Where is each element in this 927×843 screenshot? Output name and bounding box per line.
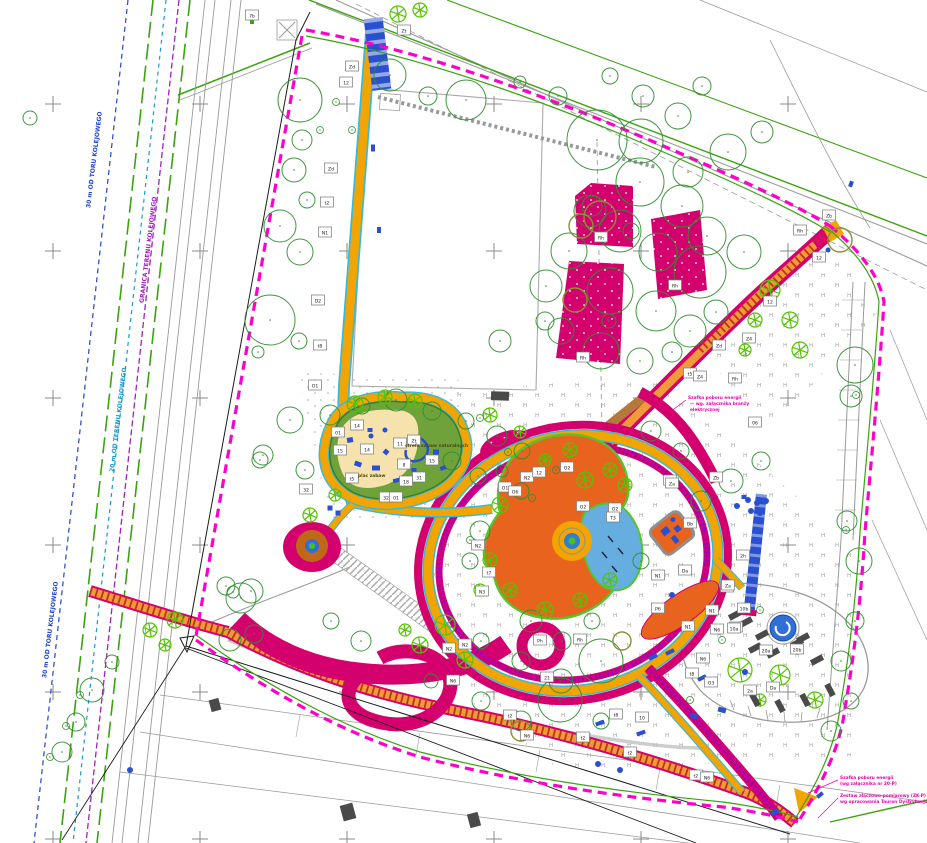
bench-or-equipment xyxy=(347,437,354,443)
tag-code: Rh xyxy=(580,355,586,361)
tree-center-dot xyxy=(427,95,429,97)
tag-code: 12 xyxy=(343,80,349,86)
tree-center-dot xyxy=(530,620,532,622)
bench-or-equipment xyxy=(433,450,439,455)
tag-code: Rh xyxy=(672,283,678,289)
label-tag: 2a xyxy=(744,685,757,695)
point-element xyxy=(383,428,388,433)
label-tag: 10b xyxy=(738,603,751,613)
tree-center-dot xyxy=(560,680,562,682)
tag-code: N1 xyxy=(685,624,691,630)
label-tag: N2 xyxy=(443,643,456,653)
label-tag: N6 xyxy=(697,653,710,663)
tag-code: 12 xyxy=(536,470,542,476)
tree-center-dot xyxy=(389,74,391,76)
label-tag: N6 xyxy=(701,772,714,782)
tag-code: t2 xyxy=(628,750,633,756)
tag-code: N6 xyxy=(450,678,456,684)
tree-center-dot xyxy=(591,205,593,207)
label-tag: 14 xyxy=(351,420,364,430)
tree-center-dot xyxy=(269,319,271,321)
tag-code: N3 xyxy=(479,589,485,595)
label-tag: t5 xyxy=(346,473,359,483)
tree-center-dot xyxy=(61,751,63,753)
tree-center-dot xyxy=(681,205,683,207)
tag-code: 10a xyxy=(730,626,739,632)
tree-center-dot xyxy=(640,140,642,142)
tag-code: 7b xyxy=(249,13,255,19)
tag-code: N1 xyxy=(709,608,715,614)
label-tag: 32 xyxy=(300,484,313,494)
label-tag: N1 xyxy=(319,227,332,237)
label-tag: 20b xyxy=(791,644,804,654)
tree-center-dot xyxy=(657,251,659,253)
tree-center-dot xyxy=(496,435,498,437)
tree-center-dot xyxy=(499,340,501,342)
small-tree-dot xyxy=(351,129,352,130)
label-tag: O1 xyxy=(309,380,322,390)
point-element xyxy=(826,248,831,253)
annotation-line: wg opracowania Tauron Dystrybucja xyxy=(840,799,927,805)
small-tree-dot xyxy=(721,639,722,640)
tag-code: Rh xyxy=(577,637,583,643)
tree-center-dot xyxy=(680,450,682,452)
tree-center-dot xyxy=(689,330,691,332)
point-element xyxy=(754,500,760,506)
tag-code: Z4 xyxy=(697,374,703,380)
label-tag: 21 xyxy=(541,672,554,682)
label-tag: 12 xyxy=(813,252,826,262)
bench-or-equipment xyxy=(412,468,417,472)
point-element xyxy=(369,434,374,439)
point-element xyxy=(748,508,754,514)
bench-or-equipment xyxy=(336,511,341,516)
tag-code: O2 xyxy=(580,504,587,510)
label-tag: 01 xyxy=(390,492,403,502)
tag-code: t2 xyxy=(325,200,330,206)
label-tag: T3 xyxy=(607,512,620,522)
point-element xyxy=(745,497,751,503)
tag-code: t2 xyxy=(581,735,586,741)
tree-center-dot xyxy=(743,251,745,253)
label-tag: Rh xyxy=(595,232,608,242)
tag-code: t5 xyxy=(350,476,355,482)
tree-center-dot xyxy=(840,660,842,662)
tag-code: N6 xyxy=(714,627,720,633)
tree-center-dot xyxy=(608,320,610,322)
annotation-line: Zestaw złączowo-pomiarowy (ZK-P) xyxy=(840,793,926,799)
label-tag: 12 xyxy=(340,77,353,87)
tree-center-dot xyxy=(111,661,113,663)
tag-code: Da xyxy=(682,568,689,574)
tree-center-dot xyxy=(596,139,598,141)
tag-code: t8 xyxy=(690,671,695,677)
tag-code: T3 xyxy=(609,515,616,521)
label-tag: Zt xyxy=(398,25,411,35)
tree-center-dot xyxy=(232,591,234,593)
playground-label: plac zabaw xyxy=(358,473,385,479)
tree-center-dot xyxy=(91,689,93,691)
small-tree-dot xyxy=(469,539,470,540)
bench-or-equipment xyxy=(368,428,373,432)
label-tag: Zb xyxy=(710,472,723,482)
annotation-line: elektrycznej xyxy=(690,407,720,413)
label-tag: Z4 xyxy=(694,371,707,381)
tree-center-dot xyxy=(568,250,570,252)
point-element xyxy=(669,592,675,598)
tree-center-dot xyxy=(451,460,453,462)
small-tree-dot xyxy=(555,469,556,470)
tag-code: O1 xyxy=(502,485,509,491)
tag-code: O6 xyxy=(512,489,519,495)
label-tag: 10 xyxy=(636,712,649,722)
tag-code: 2a xyxy=(747,688,753,694)
small-tree-dot xyxy=(531,497,532,498)
tree-center-dot xyxy=(727,151,729,153)
label-tag: Rh xyxy=(794,225,807,235)
label-tag: 14 xyxy=(361,444,374,454)
tree-center-dot xyxy=(465,420,467,422)
tree-center-dot xyxy=(699,271,701,273)
label-tag: 8 xyxy=(398,459,411,469)
tree-center-dot xyxy=(639,360,641,362)
label-tag: N3 xyxy=(476,586,489,596)
tree-center-dot xyxy=(609,75,611,77)
tag-code: 21 xyxy=(544,675,550,681)
tree-center-dot xyxy=(306,199,308,201)
label-tag: O2 xyxy=(577,501,590,511)
tree-center-dot xyxy=(760,460,762,462)
tree-center-dot xyxy=(29,117,31,119)
tree-center-dot xyxy=(655,310,657,312)
point-element xyxy=(734,503,740,509)
natural-zone-label: strefa zabaw naturalnych xyxy=(405,443,468,449)
label-tag: 06 xyxy=(749,417,762,427)
label-tag: t2 xyxy=(577,732,590,742)
tree-center-dot xyxy=(259,459,261,461)
small-tree-dot xyxy=(479,417,480,418)
annotation-line: (wg załącznika nr 20-P) xyxy=(840,781,897,787)
annotation-line: Szafka poboru energii xyxy=(688,395,742,401)
bench-or-equipment xyxy=(372,466,380,471)
label-tag: N2 xyxy=(472,540,485,550)
label-tag: 18 xyxy=(400,476,413,486)
tag-code: N2 xyxy=(446,646,452,652)
label-tag: t8 xyxy=(314,340,327,350)
tag-code: 01 xyxy=(335,430,341,436)
small-tree-dot xyxy=(65,725,66,726)
label-tag: t8 xyxy=(610,709,623,719)
small-tree-dot xyxy=(855,394,856,395)
tree-center-dot xyxy=(329,414,331,416)
label-tag: Zd xyxy=(346,61,359,71)
tag-code: 32 xyxy=(303,487,309,493)
label-tag: 7b xyxy=(246,10,259,20)
tree-center-dot xyxy=(850,395,852,397)
tree-center-dot xyxy=(229,639,231,641)
small-tree-dot xyxy=(507,451,508,452)
tree-center-dot xyxy=(589,210,591,212)
tag-code: 14 xyxy=(364,447,370,453)
tag-code: t2 xyxy=(694,773,699,779)
label-tag: O2 xyxy=(609,503,622,513)
tree-center-dot xyxy=(257,351,259,353)
tag-code: Za xyxy=(669,481,675,487)
tag-code: O3 xyxy=(708,680,715,686)
point-element xyxy=(595,761,601,767)
tree-center-dot xyxy=(650,430,652,432)
tag-code: 20b xyxy=(793,647,802,653)
tree-center-dot xyxy=(298,340,300,342)
tag-code: 01 xyxy=(393,495,399,501)
tree-center-dot xyxy=(545,285,547,287)
tag-code: t2 xyxy=(508,713,513,719)
label-tag: 15 xyxy=(426,455,439,465)
tag-code: 10 xyxy=(639,715,645,721)
small-tree-dot xyxy=(689,699,690,700)
label-tag: N1 xyxy=(682,621,695,631)
tag-code: t8 xyxy=(614,712,619,718)
tag-code: Zb xyxy=(713,475,719,481)
tag-code: Ph xyxy=(537,638,543,644)
tag-code: 8 xyxy=(403,462,406,468)
tree-center-dot xyxy=(75,721,77,723)
label-tag: t2 xyxy=(321,197,334,207)
label-tag: O2 xyxy=(561,462,574,472)
tree-center-dot xyxy=(360,640,362,642)
tree-center-dot xyxy=(640,560,642,562)
tree-center-dot xyxy=(279,225,281,227)
tag-code: Zd xyxy=(716,343,722,349)
label-tag: t8 xyxy=(686,668,699,678)
tag-code: N2 xyxy=(462,642,468,648)
tree-center-dot xyxy=(293,169,295,171)
tag-code: 32 xyxy=(383,495,389,501)
tree-center-dot xyxy=(519,81,521,83)
bench-or-equipment xyxy=(328,506,333,511)
tree-center-dot xyxy=(850,700,852,702)
tree-center-dot xyxy=(830,730,832,732)
tag-code: N6 xyxy=(700,656,706,662)
tree-center-dot xyxy=(469,560,471,562)
tree-center-dot xyxy=(642,95,644,97)
tree-center-dot xyxy=(858,560,860,562)
tag-code: N1 xyxy=(655,573,661,579)
tree-center-dot xyxy=(560,330,562,332)
label-tag: N1 xyxy=(706,605,719,615)
tree-center-dot xyxy=(262,454,264,456)
point-element xyxy=(742,669,748,675)
tree-center-dot xyxy=(619,230,621,232)
tag-code: 31 xyxy=(416,475,422,481)
label-tag: N6 xyxy=(711,624,724,634)
tree-center-dot xyxy=(501,470,503,472)
label-tag: 20a xyxy=(760,645,773,655)
tag-code: t8 xyxy=(318,343,323,349)
tree-center-dot xyxy=(854,364,856,366)
tree-center-dot xyxy=(479,530,481,532)
point-element xyxy=(127,767,133,773)
point-element xyxy=(763,498,769,504)
label-tag: Da xyxy=(767,682,780,692)
label-tag: N1 xyxy=(652,570,665,580)
point-element xyxy=(757,510,763,516)
tree-center-dot xyxy=(430,680,432,682)
label-tag: 10a xyxy=(728,623,741,633)
label-tag: Rh xyxy=(574,634,587,644)
label-tag: Zd xyxy=(325,163,338,173)
tag-code: t5 xyxy=(688,371,693,377)
label-tag: Z4 xyxy=(743,333,756,343)
tag-code: D2 xyxy=(315,298,322,304)
tree-center-dot xyxy=(671,351,673,353)
annotation-line: Szafka poboru energii xyxy=(840,775,894,781)
tree-center-dot xyxy=(600,660,602,662)
tree-center-dot xyxy=(477,475,479,477)
small-tree-dot xyxy=(845,529,846,530)
label-tag: Rh xyxy=(577,352,590,362)
tree-center-dot xyxy=(544,320,546,322)
tree-center-dot xyxy=(521,450,523,452)
label-tag: Zd xyxy=(713,340,726,350)
tag-code: Rh xyxy=(797,228,803,234)
tag-code: N6 xyxy=(704,775,710,781)
annotation-line: — wg. załącznika branży xyxy=(690,401,749,407)
tree-center-dot xyxy=(299,99,301,101)
label-tag: Da xyxy=(679,565,692,575)
label-tag: t2 xyxy=(624,747,637,757)
tag-code: 12 xyxy=(767,299,773,305)
parking-fountain xyxy=(770,615,796,641)
tag-code: 2h xyxy=(740,553,746,559)
tree-center-dot xyxy=(225,585,227,587)
bench-or-equipment xyxy=(371,145,375,152)
bench-or-equipment xyxy=(377,227,381,233)
label-tag: 31 xyxy=(413,472,426,482)
small-tree-dot xyxy=(319,129,320,130)
label-tag: Za xyxy=(666,478,679,488)
tree-center-dot xyxy=(465,99,467,101)
small-tree-dot xyxy=(49,756,50,757)
tree-center-dot xyxy=(289,419,291,421)
tree-center-dot xyxy=(480,700,482,702)
tree-center-dot xyxy=(520,660,522,662)
tag-code: 11 xyxy=(397,441,403,447)
tag-code: 14 xyxy=(354,423,360,429)
label-tag: 01 xyxy=(332,427,345,437)
tree-center-dot xyxy=(854,620,856,622)
tag-code: P6 xyxy=(655,606,661,612)
tree-center-dot xyxy=(639,181,641,183)
green-marker xyxy=(250,20,254,24)
parked-car-or-building xyxy=(491,391,509,401)
tree-center-dot xyxy=(557,95,559,97)
small-tree-dot xyxy=(79,694,80,695)
tree-center-dot xyxy=(730,480,732,482)
tree-center-dot xyxy=(250,590,252,592)
tree-center-dot xyxy=(630,230,632,232)
tag-code: Zb xyxy=(826,213,832,219)
label-tag: 12 xyxy=(533,467,546,477)
tag-code: O1 xyxy=(312,383,319,389)
tree-center-dot xyxy=(480,640,482,642)
label-tag: Zb xyxy=(823,210,836,220)
tag-code: 15 xyxy=(337,448,343,454)
tree-center-dot xyxy=(395,399,397,401)
tree-center-dot xyxy=(431,410,433,412)
tag-code: t7 xyxy=(487,570,492,576)
label-tag: Bb xyxy=(684,518,697,528)
tree-center-dot xyxy=(301,139,303,141)
tag-code: Zt xyxy=(402,28,407,34)
label-tag: Rh xyxy=(669,280,682,290)
label-tag: Za xyxy=(722,580,735,590)
label-tag: t2 xyxy=(504,710,517,720)
tree-center-dot xyxy=(715,311,717,313)
tag-code: Z4 xyxy=(746,336,752,342)
label-tag: O6 xyxy=(509,486,522,496)
label-tag: D2 xyxy=(312,295,325,305)
label-tag: O3 xyxy=(705,677,718,687)
label-tag: N2 xyxy=(521,472,534,482)
tag-code: 06 xyxy=(752,420,758,426)
tree-center-dot xyxy=(700,500,702,502)
tree-center-dot xyxy=(561,640,563,642)
tag-code: Da xyxy=(770,685,777,691)
label-tag: N6 xyxy=(521,730,534,740)
tree-center-dot xyxy=(846,520,848,522)
site-plan-canvas: H H xyxy=(0,0,927,843)
mound-feature xyxy=(283,522,341,572)
small-tree-dot xyxy=(335,101,336,102)
tree-center-dot xyxy=(687,171,689,173)
tag-code: 18 xyxy=(403,479,409,485)
tree-center-dot xyxy=(253,633,255,635)
label-tag: Ph xyxy=(534,635,547,645)
tag-code: N6 xyxy=(524,733,530,739)
tree-center-dot xyxy=(559,699,561,701)
tree-center-dot xyxy=(330,620,332,622)
label-tag: N2 xyxy=(459,639,472,649)
tree-center-dot xyxy=(706,235,708,237)
label-tag: 15 xyxy=(334,445,347,455)
tree-center-dot xyxy=(304,469,306,471)
tree-center-dot xyxy=(600,350,602,352)
tree-center-dot xyxy=(609,290,611,292)
tag-code: N2 xyxy=(524,475,530,481)
label-tag: t7 xyxy=(483,567,496,577)
tree-center-dot xyxy=(591,620,593,622)
tree-center-dot xyxy=(299,251,301,253)
point-element xyxy=(617,767,623,773)
tag-code: Bb xyxy=(687,521,693,527)
label-tag: P6 xyxy=(652,603,665,613)
tag-code: Rh xyxy=(598,235,604,241)
tag-code: Zd xyxy=(328,166,334,172)
tree-center-dot xyxy=(761,131,763,133)
tag-code: Rh xyxy=(732,376,738,382)
tree-center-dot xyxy=(701,85,703,87)
tag-code: N2 xyxy=(475,543,481,549)
tag-code: 10b xyxy=(740,606,749,612)
tag-code: 15 xyxy=(429,458,435,464)
label-tag: N6 xyxy=(447,675,460,685)
tag-code: Za xyxy=(725,583,731,589)
tag-code: N1 xyxy=(322,230,328,236)
tag-code: O2 xyxy=(612,506,619,512)
tag-code: O2 xyxy=(564,465,571,471)
label-tag: 12 xyxy=(764,296,777,306)
